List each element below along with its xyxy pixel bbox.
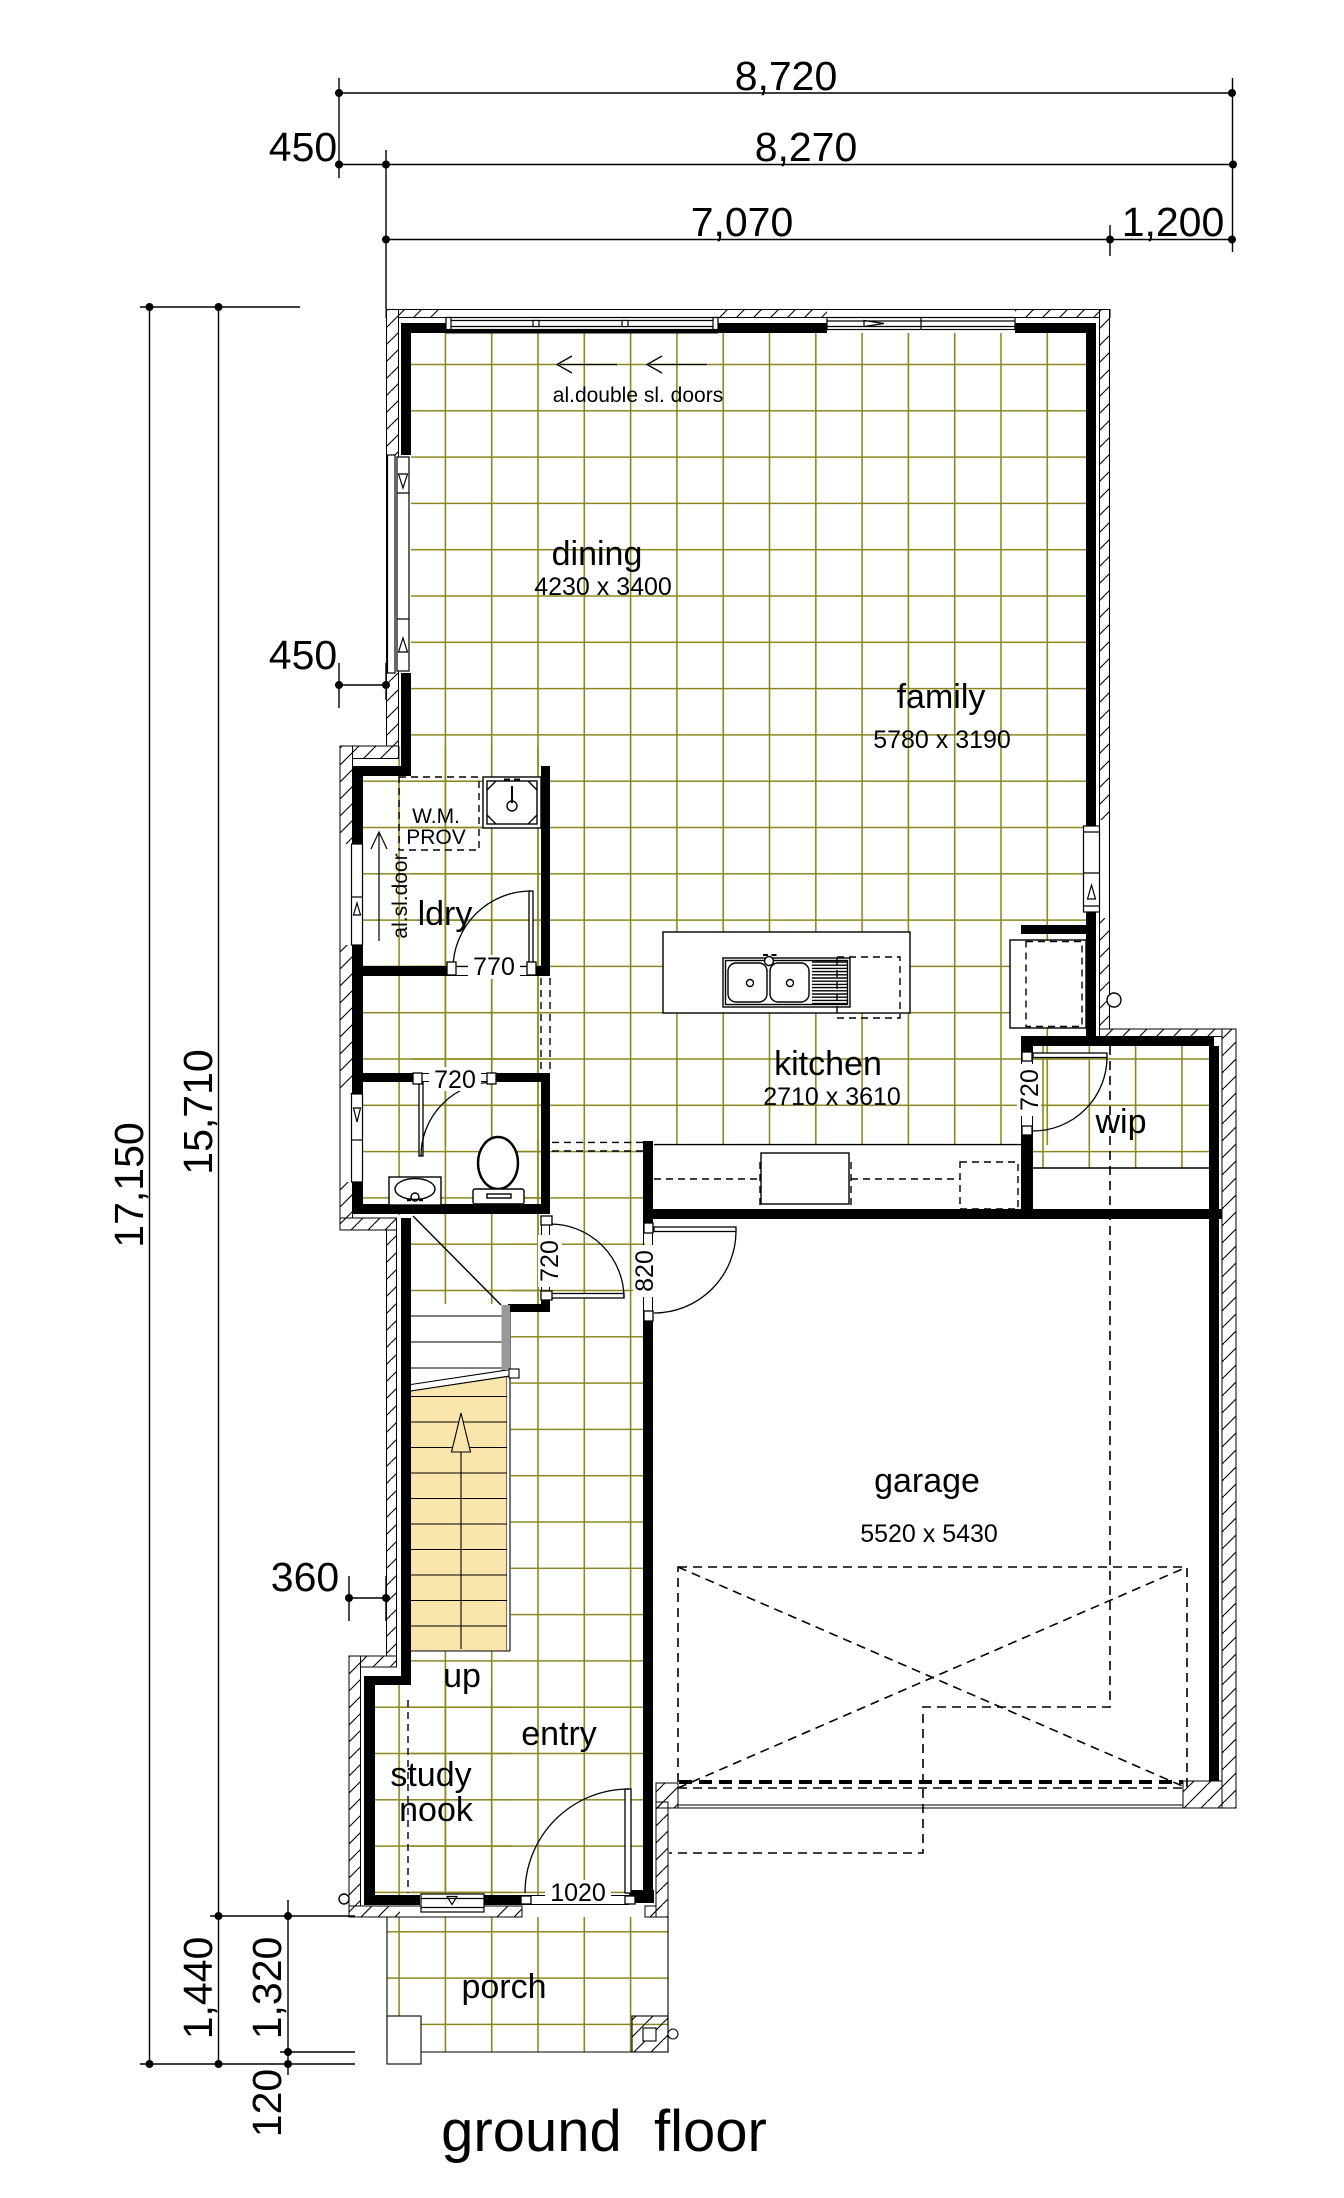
svg-text:120: 120 bbox=[244, 2069, 290, 2137]
svg-text:dining: dining bbox=[552, 535, 643, 573]
svg-text:8,720: 8,720 bbox=[735, 53, 838, 99]
svg-text:7,070: 7,070 bbox=[691, 199, 794, 245]
svg-text:ldry: ldry bbox=[418, 895, 473, 933]
svg-text:study: study bbox=[390, 1756, 471, 1794]
svg-text:820: 820 bbox=[631, 1250, 659, 1292]
svg-text:al.double sl. doors: al.double sl. doors bbox=[553, 384, 723, 407]
svg-text:4230 x 3400: 4230 x 3400 bbox=[534, 573, 672, 601]
svg-text:15,710: 15,710 bbox=[175, 1049, 221, 1174]
svg-text:up: up bbox=[443, 1657, 481, 1695]
svg-text:al.sl.door: al.sl.door bbox=[389, 853, 412, 938]
svg-text:2710 x 3610: 2710 x 3610 bbox=[763, 1083, 901, 1111]
svg-text:720: 720 bbox=[536, 1240, 564, 1282]
svg-text:1,320: 1,320 bbox=[244, 1937, 290, 2040]
svg-text:5780 x 3190: 5780 x 3190 bbox=[873, 726, 1011, 754]
svg-text:porch: porch bbox=[461, 1968, 546, 2006]
svg-text:720: 720 bbox=[434, 1066, 476, 1094]
svg-text:360: 360 bbox=[271, 1554, 339, 1600]
svg-text:entry: entry bbox=[521, 1715, 597, 1753]
svg-text:720: 720 bbox=[1016, 1069, 1044, 1111]
svg-text:1,440: 1,440 bbox=[175, 1937, 221, 2040]
svg-text:W.M.: W.M. bbox=[412, 805, 460, 828]
svg-text:17,150: 17,150 bbox=[106, 1122, 152, 1247]
svg-text:PROV: PROV bbox=[406, 826, 466, 849]
svg-text:770: 770 bbox=[473, 953, 515, 981]
svg-text:family: family bbox=[897, 678, 986, 716]
svg-text:1,200: 1,200 bbox=[1122, 199, 1225, 245]
svg-text:1020: 1020 bbox=[550, 1879, 606, 1907]
svg-text:450: 450 bbox=[269, 124, 337, 170]
svg-text:nook: nook bbox=[399, 1791, 474, 1829]
svg-text:kitchen: kitchen bbox=[774, 1045, 882, 1083]
svg-text:wip: wip bbox=[1094, 1103, 1146, 1141]
svg-text:8,270: 8,270 bbox=[755, 124, 858, 170]
svg-text:450: 450 bbox=[269, 632, 337, 678]
svg-text:ground floor: ground floor bbox=[441, 2099, 767, 2164]
svg-text:5520 x 5430: 5520 x 5430 bbox=[860, 1520, 998, 1548]
svg-text:garage: garage bbox=[874, 1462, 980, 1500]
